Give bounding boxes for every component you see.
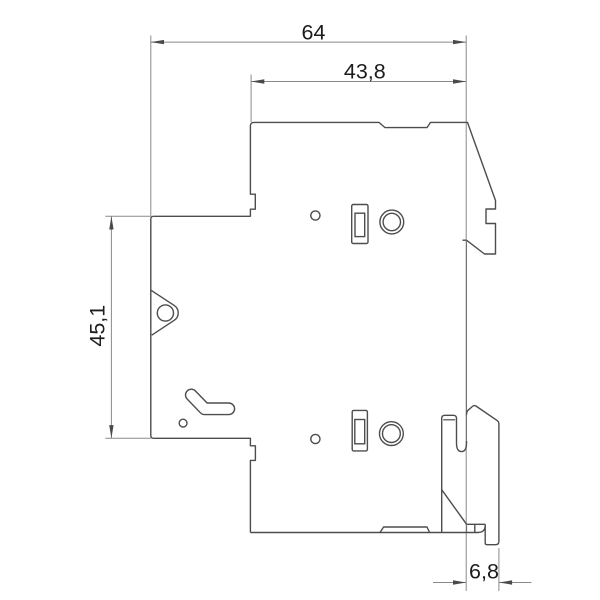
svg-text:43,8: 43,8 xyxy=(344,60,386,84)
svg-text:6,8: 6,8 xyxy=(469,559,499,583)
svg-text:64: 64 xyxy=(302,21,326,45)
svg-text:45,1: 45,1 xyxy=(85,305,109,347)
